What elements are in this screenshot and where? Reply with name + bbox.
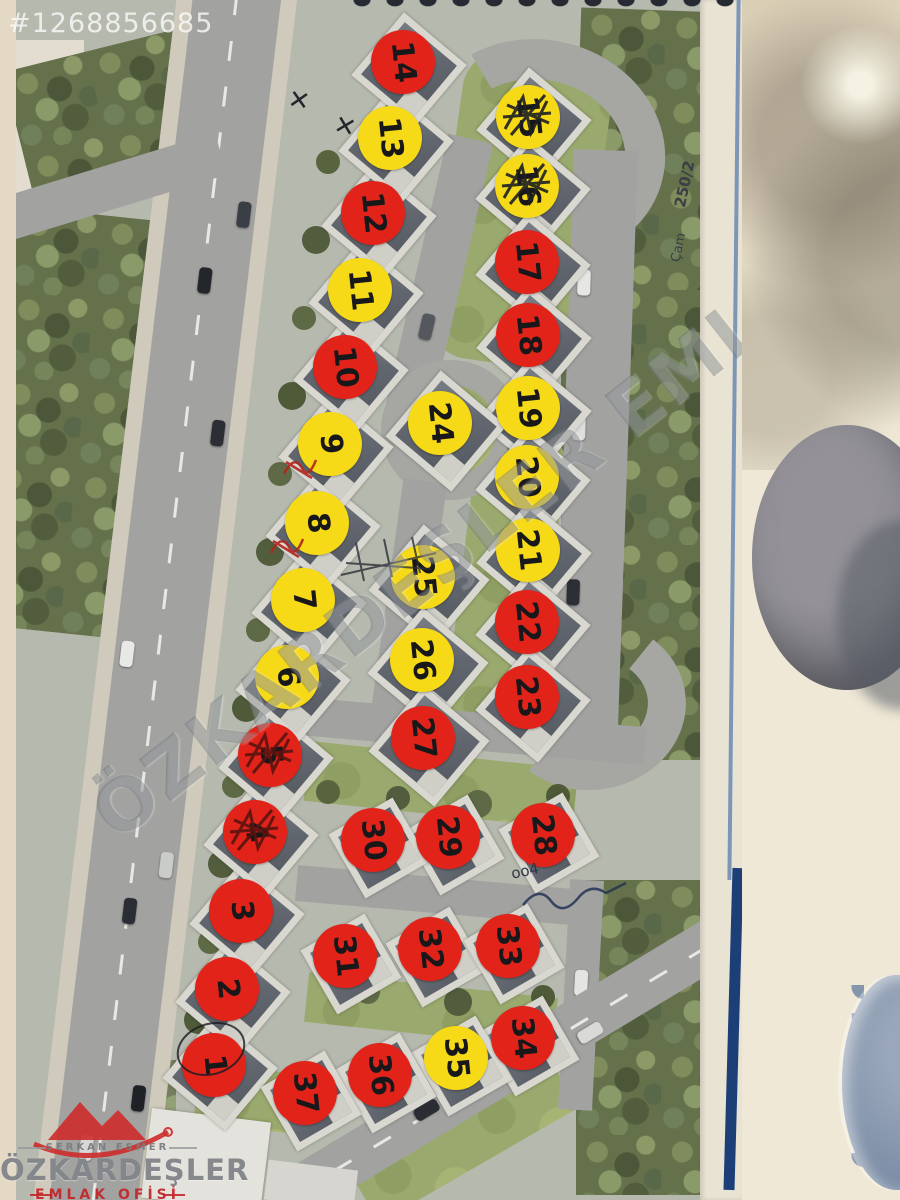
- lot-marker-17: 17: [495, 230, 559, 294]
- lot-number-29: 29: [431, 815, 465, 860]
- lot-number-9: 9: [314, 432, 346, 456]
- lot-marker-22: 22: [495, 590, 559, 654]
- binding-marks: [346, 0, 746, 16]
- lot-number-32: 32: [413, 927, 447, 972]
- lot-marker-23: 23: [495, 665, 559, 729]
- logo-name-main: ÖZKARDEŞLER: [0, 1153, 215, 1187]
- lot-number-3: 3: [225, 899, 257, 923]
- lot-marker-9: 9: [298, 412, 362, 476]
- lot-marker-35: 35: [424, 1026, 488, 1090]
- lot-marker-31: 31: [313, 924, 377, 988]
- lot-number-4: 4: [239, 820, 271, 844]
- table-surface: [742, 0, 900, 1200]
- lot-number-34: 34: [506, 1016, 540, 1061]
- lot-marker-3: 3: [209, 879, 273, 943]
- lot-number-8: 8: [301, 511, 333, 535]
- lot-marker-12: 12: [341, 181, 405, 245]
- lot-marker-14: 14: [371, 30, 435, 94]
- lot-number-28: 28: [526, 813, 560, 858]
- lot-marker-27: 27: [391, 706, 455, 770]
- listing-photo: 12345678910111213✕1415161718192021222324…: [0, 0, 900, 1200]
- lot-marker-2: 2: [195, 957, 259, 1021]
- pen-circle-mark: [170, 1013, 253, 1084]
- lot-marker-29: 29: [416, 805, 480, 869]
- lot-number-14: 14: [386, 40, 420, 85]
- lot-number-36: 36: [363, 1053, 397, 1098]
- lot-number-37: 37: [288, 1071, 322, 1116]
- lot-number-18: 18: [511, 313, 545, 358]
- lot-marker-16: 16: [495, 154, 559, 218]
- logo-name-sub: EMLAK OFİSİ: [0, 1187, 215, 1200]
- lot-number-12: 12: [356, 191, 390, 236]
- red-pen-mark: [280, 452, 320, 486]
- agency-logo: SERKAN ESMER ÖZKARDEŞLER EMLAK OFİSİ: [0, 1090, 215, 1200]
- lot-number-31: 31: [328, 934, 362, 979]
- lot-number-26: 26: [405, 638, 439, 683]
- lot-marker-8: 8: [285, 491, 349, 555]
- lot-marker-37: 37: [273, 1061, 337, 1125]
- lot-number-33: 33: [491, 924, 525, 969]
- lot-number-35: 35: [439, 1036, 473, 1081]
- lot-marker-24: 24: [408, 391, 472, 455]
- lot-marker-34: 34: [491, 1006, 555, 1070]
- lot-number-2: 2: [211, 977, 243, 1001]
- lot-number-10: 10: [328, 345, 362, 390]
- lot-marker-15: 15: [496, 85, 560, 149]
- lot-number-23: 23: [510, 675, 544, 720]
- lot-number-27: 27: [406, 716, 440, 761]
- lot-marker-30: 30: [341, 808, 405, 872]
- lot-number-24: 24: [423, 401, 457, 446]
- lot-number-11: 11: [343, 268, 377, 313]
- lot-marker-18: 18: [496, 303, 560, 367]
- table-left-strip: [0, 0, 16, 1200]
- red-pen-mark: [267, 531, 307, 565]
- table-reflection: [742, 0, 900, 470]
- lot-marker-4: 4: [223, 800, 287, 864]
- lot-number-17: 17: [510, 240, 544, 285]
- logo-name-top: SERKAN ESMER: [0, 1142, 215, 1153]
- site-plan-paper: 12345678910111213✕1415161718192021222324…: [16, 0, 742, 1200]
- lot-marker-36: 36: [348, 1043, 412, 1107]
- lot-number-19: 19: [511, 386, 545, 431]
- lot-number-15: 15: [511, 95, 545, 140]
- lot-marker-10: 10: [313, 335, 377, 399]
- lot-number-13: 13: [373, 116, 407, 161]
- lot-marker-33: 33: [476, 914, 540, 978]
- lot-marker-28: 28: [511, 803, 575, 867]
- lot-number-16: 16: [510, 164, 544, 209]
- lot-number-22: 22: [510, 600, 544, 645]
- listing-id: #1268856685: [8, 8, 213, 39]
- lot-marker-32: 32: [398, 917, 462, 981]
- x-mark: ✕: [286, 84, 313, 117]
- lot-marker-11: 11: [328, 258, 392, 322]
- lot-number-30: 30: [356, 818, 390, 863]
- lot-marker-13: 13✕: [358, 106, 422, 170]
- lot-marker-1: 1: [182, 1033, 246, 1097]
